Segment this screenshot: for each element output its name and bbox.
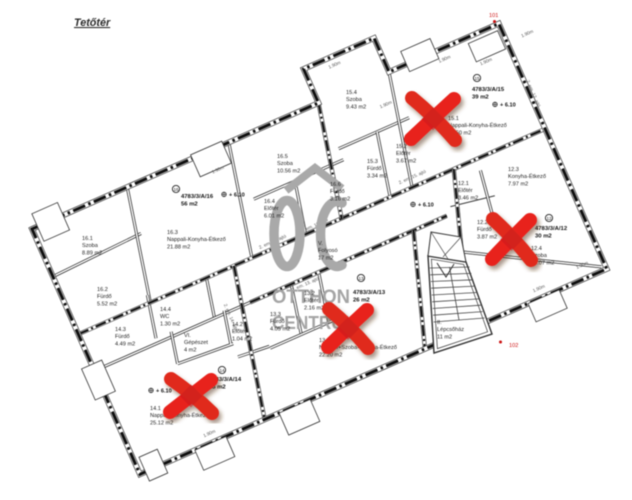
svg-text:17 m2: 17 m2 [318,255,334,261]
svg-text:16.3: 16.3 [167,230,178,236]
svg-text:39 m2: 39 m2 [472,95,489,101]
svg-text:3.46 m2: 3.46 m2 [458,195,478,201]
svg-text:8.89 m2: 8.89 m2 [82,250,102,256]
svg-text:56 m2: 56 m2 [181,202,198,208]
svg-text:Nappali-Konyha-Étkező: Nappali-Konyha-Étkező [167,236,226,243]
svg-text:10.56 m2: 10.56 m2 [277,168,300,174]
svg-text:101: 101 [489,13,498,19]
svg-text:Előtér: Előtér [232,329,247,335]
svg-text:12.2: 12.2 [477,220,488,226]
svg-text:3.34 m2: 3.34 m2 [367,173,387,179]
svg-text:3.16 m2: 3.16 m2 [330,196,350,202]
svg-text:16.1: 16.1 [82,236,93,242]
svg-text:+ 6.10: + 6.10 [418,203,434,209]
svg-text:Előtér: Előtér [458,188,473,194]
svg-text:Előtér: Előtér [304,298,319,304]
svg-text:13: 13 [358,276,364,281]
svg-text:12.3: 12.3 [508,167,519,173]
svg-text:Szoba: Szoba [82,243,99,249]
svg-text:4 m2: 4 m2 [184,347,196,353]
svg-text:6.01 m2: 6.01 m2 [264,213,284,219]
svg-text:26 m2: 26 m2 [353,298,370,304]
svg-text:102: 102 [509,343,518,349]
svg-text:Fürdő: Fürdő [477,227,492,233]
svg-text:15.1: 15.1 [448,116,459,122]
svg-text:Nappali-Konyha-Étkező: Nappali-Konyha-Étkező [448,122,507,129]
svg-text:3.87 m2: 3.87 m2 [477,234,497,240]
svg-text:Lépcsőház: Lépcsőház [437,327,464,333]
svg-text:4783/3/A/16: 4783/3/A/16 [181,194,214,200]
svg-text:15.2: 15.2 [396,144,407,150]
svg-text:Konyha-Étkező: Konyha-Étkező [508,173,546,180]
svg-text:4.49 m2: 4.49 m2 [115,341,135,347]
svg-text:16.4: 16.4 [264,199,275,205]
svg-text:Fürdő: Fürdő [97,294,112,300]
svg-text:Folyosó: Folyosó [318,248,338,254]
svg-text:1.30 m2: 1.30 m2 [160,321,180,327]
svg-text:12: 12 [546,216,552,221]
svg-text:+ 6.10: + 6.10 [229,193,245,199]
svg-text:Fürdő: Fürdő [367,166,382,172]
svg-text:30 m2: 30 m2 [535,234,552,240]
svg-text:9.43 m2: 9.43 m2 [346,104,366,110]
svg-text:+ 6.10: + 6.10 [156,389,172,395]
svg-text:Gépészet: Gépészet [184,340,208,346]
svg-text:21.88 m2: 21.88 m2 [167,244,190,250]
svg-text:+ 6.10: + 6.10 [500,103,516,109]
svg-text:13.3: 13.3 [270,312,281,318]
svg-text:15: 15 [474,76,480,81]
svg-text:4783/3/A/13: 4783/3/A/13 [353,290,386,296]
svg-text:12.1: 12.1 [458,181,469,187]
svg-text:II.: II. [437,320,442,326]
svg-text:16: 16 [173,187,179,192]
svg-text:Fürdő: Fürdő [330,189,345,195]
svg-text:14: 14 [219,368,225,373]
svg-text:Szoba: Szoba [346,97,363,103]
svg-text:2.16 m2: 2.16 m2 [304,305,324,311]
svg-text:WC: WC [160,314,169,320]
svg-text:Fürdő: Fürdő [270,319,285,325]
svg-text:VI.: VI. [184,333,191,339]
svg-text:Fürdő: Fürdő [115,334,130,340]
svg-text:14.2: 14.2 [232,322,243,328]
svg-text:14.4: 14.4 [160,307,171,313]
svg-text:1.04 m2: 1.04 m2 [232,336,252,342]
svg-text:16.2: 16.2 [97,287,108,293]
svg-text:14.3: 14.3 [115,327,126,333]
svg-text:15.3: 15.3 [367,159,378,165]
svg-text:5.52 m2: 5.52 m2 [97,301,117,307]
svg-text:14.1: 14.1 [150,406,161,412]
svg-text:25.12 m2: 25.12 m2 [150,420,173,426]
svg-text:16.5: 16.5 [277,154,288,160]
svg-text:Szoba: Szoba [277,161,294,167]
svg-text:13.2: 13.2 [304,291,315,297]
svg-text:4.05 m2: 4.05 m2 [270,326,290,332]
svg-text:Tetőtér: Tetőtér [74,17,111,29]
svg-text:Előtér: Előtér [264,206,279,212]
svg-text:V.: V. [318,241,323,247]
svg-text:15.4: 15.4 [346,90,357,96]
svg-text:4783/3/A/12: 4783/3/A/12 [535,226,568,232]
svg-text:3.67 m2: 3.67 m2 [396,158,416,164]
svg-text:Előtér: Előtér [396,151,411,157]
svg-text:11 m2: 11 m2 [437,334,452,340]
svg-text:7.97 m2: 7.97 m2 [508,181,528,187]
svg-text:16.6: 16.6 [330,182,341,188]
svg-text:4783/3/A/15: 4783/3/A/15 [472,87,505,93]
